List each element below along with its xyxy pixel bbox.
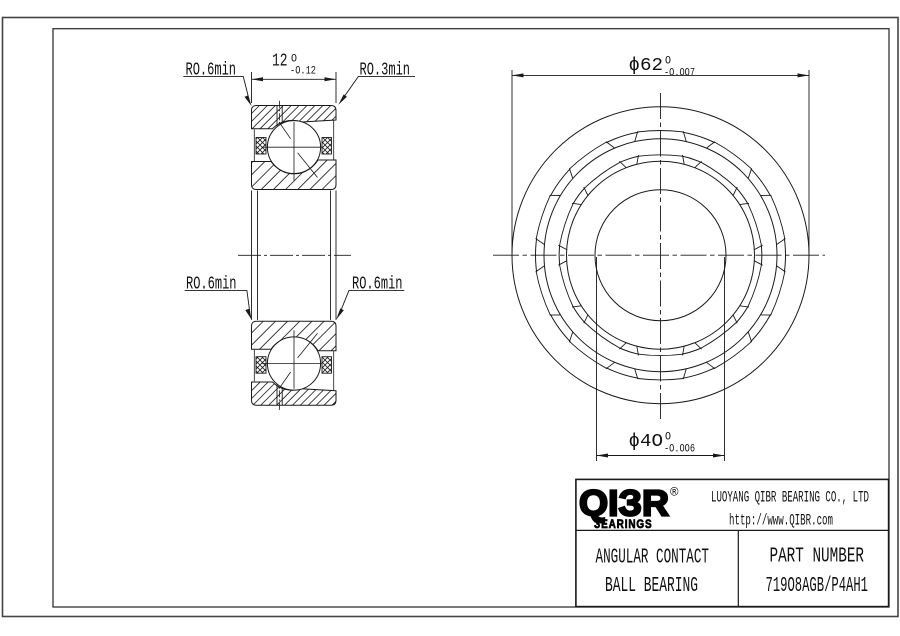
svg-text:ЗEARINGS: ЗEARINGS	[594, 519, 653, 531]
svg-text:BALL BEARING: BALL BEARING	[605, 575, 698, 598]
svg-text:ANGULAR CONTACT: ANGULAR CONTACT	[596, 547, 710, 570]
svg-text:LUOYANG QIBR BEARING CO., LTD: LUOYANG QIBR BEARING CO., LTD	[711, 489, 869, 507]
svg-text:O: O	[291, 54, 297, 66]
svg-text:QIЗR: QIЗR	[579, 483, 669, 524]
svg-text:RO.6min: RO.6min	[352, 275, 403, 295]
svg-text:O: O	[665, 56, 671, 68]
svg-text:719O8AGB/P4AH1: 719O8AGB/P4AH1	[766, 575, 869, 598]
svg-text:PART NUMBER: PART NUMBER	[770, 546, 865, 569]
svg-text:O: O	[665, 432, 671, 444]
svg-text:RO.6min: RO.6min	[186, 61, 237, 81]
svg-text:ϕ4O: ϕ4O	[629, 432, 664, 452]
svg-text:-O.12: -O.12	[290, 66, 316, 78]
svg-text:-O.OO6: -O.OO6	[664, 444, 695, 456]
svg-text:12: 12	[272, 52, 288, 72]
svg-text:RO.6min: RO.6min	[186, 275, 237, 295]
svg-text:®: ®	[670, 487, 679, 499]
svg-text:ϕ62: ϕ62	[629, 56, 664, 76]
svg-text:RO.3min: RO.3min	[360, 61, 411, 81]
svg-text:-O.OO7: -O.OO7	[664, 68, 695, 80]
svg-text:http://www.QIBR.com: http://www.QIBR.com	[729, 512, 833, 530]
